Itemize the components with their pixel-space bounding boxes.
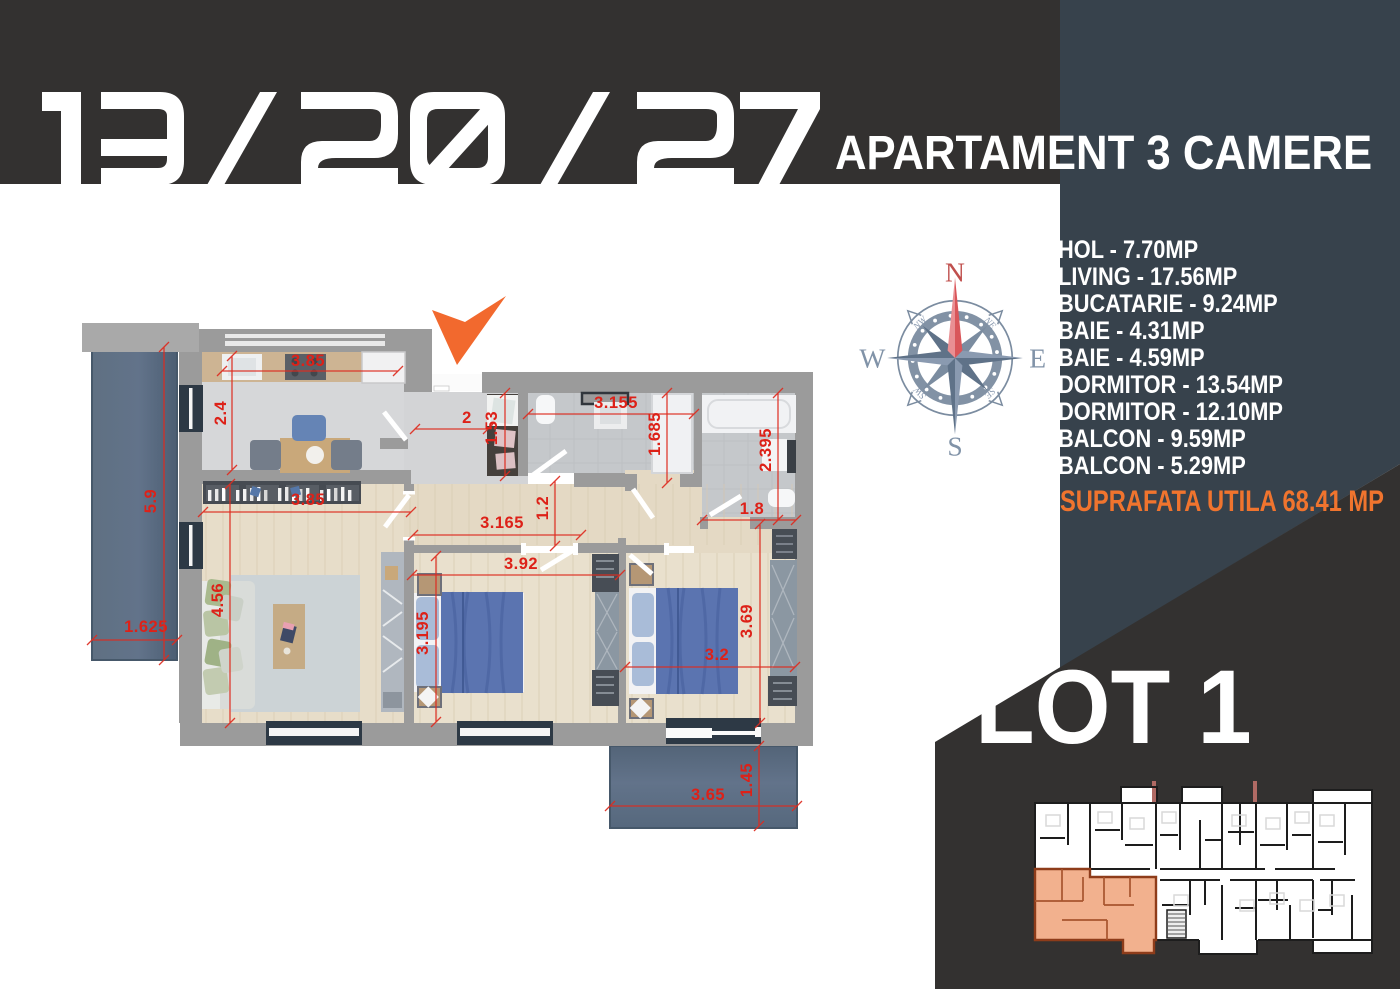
svg-text:5.9: 5.9 bbox=[142, 489, 160, 513]
svg-text:3.165: 3.165 bbox=[480, 514, 524, 532]
svg-text:3.69: 3.69 bbox=[738, 604, 756, 638]
svg-text:W: W bbox=[859, 343, 885, 374]
svg-text:3.85: 3.85 bbox=[291, 352, 325, 370]
svg-text:2.395: 2.395 bbox=[757, 428, 775, 472]
svg-text:1.625: 1.625 bbox=[124, 618, 168, 636]
svg-text:3.65: 3.65 bbox=[691, 786, 725, 804]
svg-text:1.685: 1.685 bbox=[646, 412, 664, 456]
svg-text:3.155: 3.155 bbox=[594, 394, 638, 412]
svg-text:1.2: 1.2 bbox=[534, 496, 552, 520]
svg-text:1.8: 1.8 bbox=[740, 500, 764, 518]
svg-text:1.53: 1.53 bbox=[483, 411, 501, 445]
svg-text:N: N bbox=[945, 257, 965, 288]
svg-text:E: E bbox=[1029, 343, 1046, 374]
svg-text:2.4: 2.4 bbox=[212, 400, 230, 425]
svg-text:3.195: 3.195 bbox=[414, 611, 432, 655]
svg-text:3.85: 3.85 bbox=[291, 491, 325, 509]
svg-text:2: 2 bbox=[462, 409, 472, 427]
svg-text:3.2: 3.2 bbox=[705, 646, 729, 664]
svg-text:3.92: 3.92 bbox=[504, 555, 538, 573]
svg-text:1.45: 1.45 bbox=[738, 763, 756, 797]
svg-text:S: S bbox=[947, 431, 962, 462]
svg-text:4.56: 4.56 bbox=[209, 583, 227, 617]
